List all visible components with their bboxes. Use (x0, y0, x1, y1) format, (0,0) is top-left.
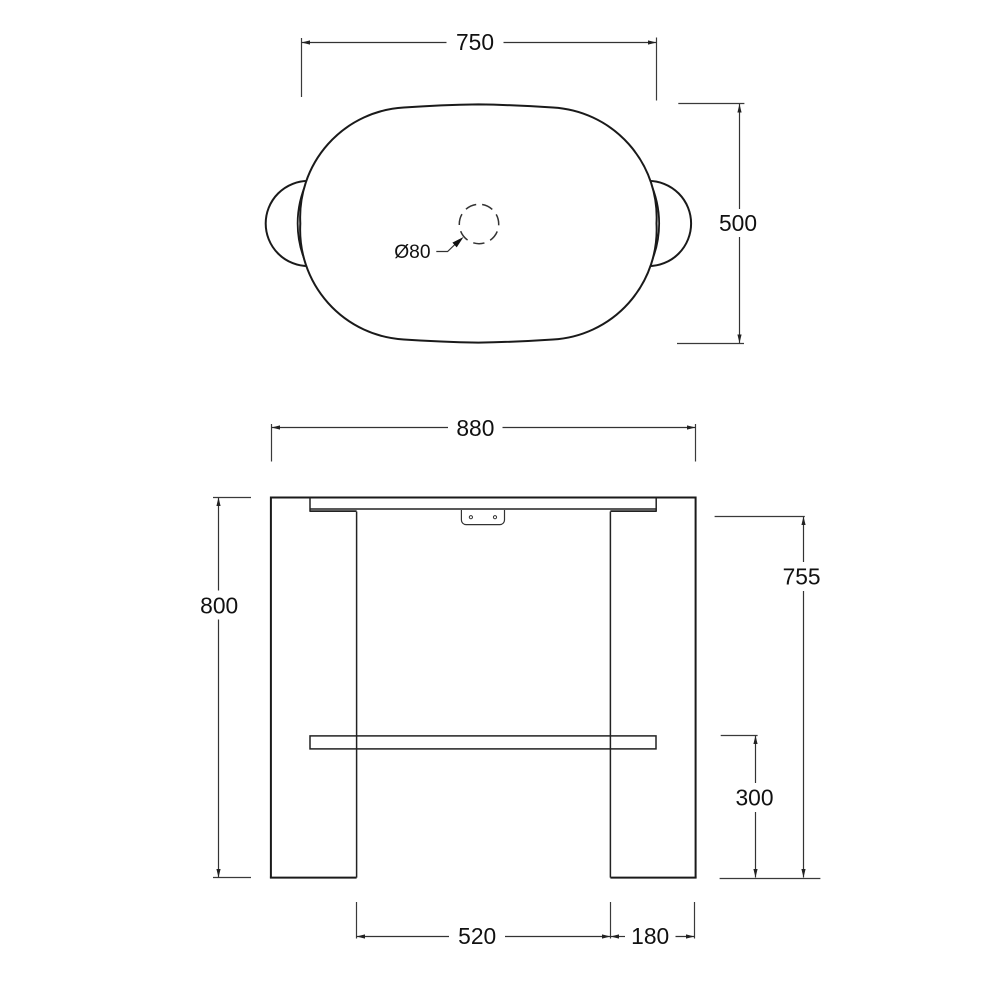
svg-text:750: 750 (456, 29, 494, 55)
svg-text:Ø80: Ø80 (394, 242, 430, 263)
svg-text:180: 180 (631, 923, 669, 949)
svg-text:300: 300 (735, 785, 773, 811)
svg-text:800: 800 (200, 592, 238, 618)
svg-text:500: 500 (719, 210, 757, 236)
svg-text:880: 880 (456, 415, 494, 441)
svg-text:520: 520 (458, 923, 496, 949)
svg-text:755: 755 (783, 564, 821, 590)
